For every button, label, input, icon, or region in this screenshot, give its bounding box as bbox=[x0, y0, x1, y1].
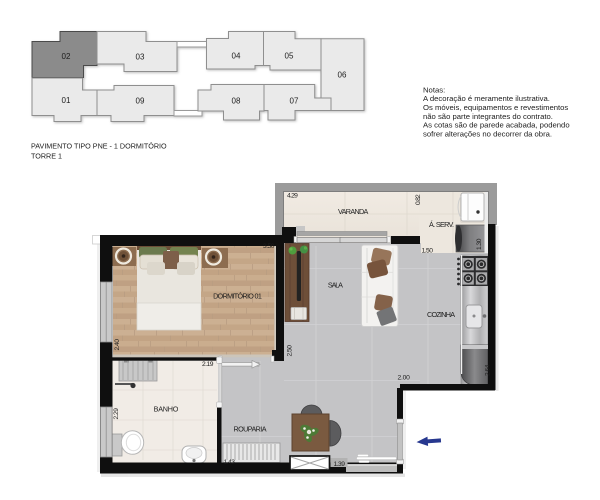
svg-text:1.30: 1.30 bbox=[476, 238, 483, 250]
svg-text:ROUPARIA: ROUPARIA bbox=[234, 425, 267, 434]
svg-text:2.64: 2.64 bbox=[485, 364, 492, 376]
svg-text:3.50: 3.50 bbox=[263, 243, 275, 250]
svg-text:COZINHA: COZINHA bbox=[427, 310, 455, 319]
svg-text:SALA: SALA bbox=[328, 281, 343, 290]
svg-text:PAVIMENTO TIPO PNE - 1 DORMITÓ: PAVIMENTO TIPO PNE - 1 DORMITÓRIO bbox=[31, 141, 167, 150]
svg-text:sofrer alterações no decorrer: sofrer alterações no decorrer da obra. bbox=[423, 129, 552, 138]
svg-text:Á. SERV.: Á. SERV. bbox=[429, 220, 454, 229]
svg-text:DORMITÓRIO 01: DORMITÓRIO 01 bbox=[213, 292, 262, 301]
svg-text:1.50: 1.50 bbox=[422, 247, 434, 254]
svg-text:VARANDA: VARANDA bbox=[338, 207, 369, 216]
svg-text:TORRE 1: TORRE 1 bbox=[31, 151, 62, 160]
svg-text:05: 05 bbox=[285, 52, 294, 61]
svg-text:01: 01 bbox=[62, 96, 71, 105]
svg-text:Notas:: Notas: bbox=[423, 85, 445, 94]
svg-text:08: 08 bbox=[232, 97, 241, 106]
svg-text:06: 06 bbox=[338, 71, 347, 80]
svg-text:2.19: 2.19 bbox=[202, 361, 214, 368]
svg-text:07: 07 bbox=[290, 97, 299, 106]
svg-text:Os móveis, equipamentos e reve: Os móveis, equipamentos e revestimentos bbox=[423, 103, 568, 112]
svg-text:2.00: 2.00 bbox=[398, 374, 411, 381]
svg-text:2.50: 2.50 bbox=[287, 345, 294, 357]
svg-text:03: 03 bbox=[136, 53, 145, 62]
svg-text:A decoração é meramente ilustr: A decoração é meramente ilustrativa. bbox=[423, 94, 550, 103]
svg-text:2.40: 2.40 bbox=[114, 339, 121, 351]
svg-text:0.82: 0.82 bbox=[415, 194, 422, 205]
svg-text:BANHO: BANHO bbox=[154, 405, 179, 414]
svg-text:As cotas são de parede acabada: As cotas são de parede acabada, podendo bbox=[423, 121, 570, 130]
svg-text:02: 02 bbox=[62, 52, 71, 61]
svg-text:1.39: 1.39 bbox=[334, 461, 346, 468]
svg-text:09: 09 bbox=[136, 97, 145, 106]
svg-text:04: 04 bbox=[232, 52, 241, 61]
svg-text:4.29: 4.29 bbox=[287, 193, 298, 200]
svg-text:2.29: 2.29 bbox=[113, 408, 120, 420]
svg-text:não são parte integrantes do c: não são parte integrantes do contrato. bbox=[423, 112, 553, 121]
svg-text:1.43: 1.43 bbox=[224, 459, 236, 466]
